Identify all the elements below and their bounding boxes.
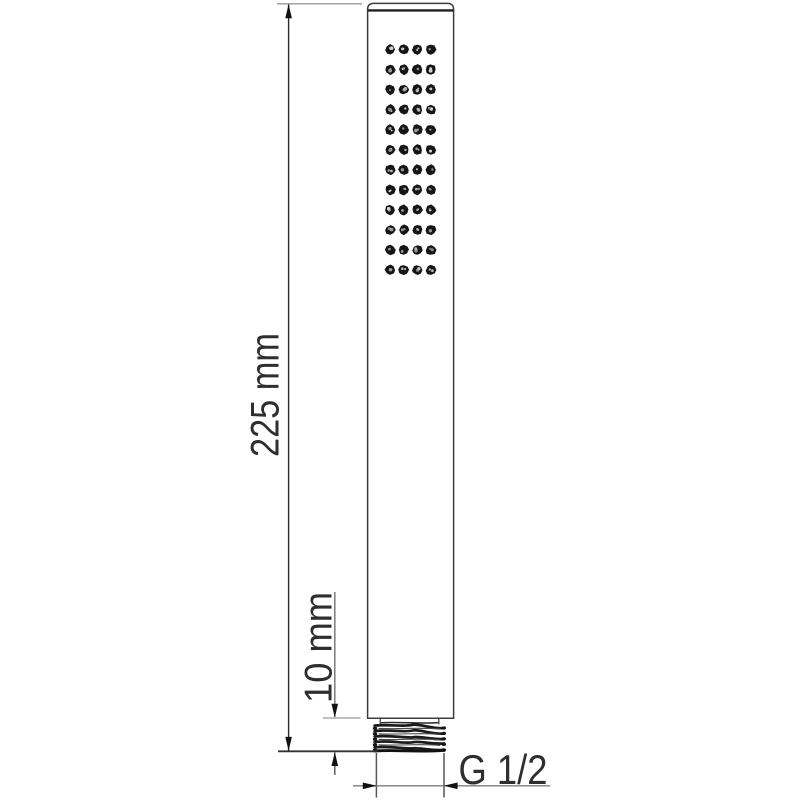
svg-text:225 mm: 225 mm	[244, 333, 288, 457]
svg-text:10 mm: 10 mm	[298, 592, 341, 703]
svg-text:G 1/2: G 1/2	[459, 746, 548, 793]
